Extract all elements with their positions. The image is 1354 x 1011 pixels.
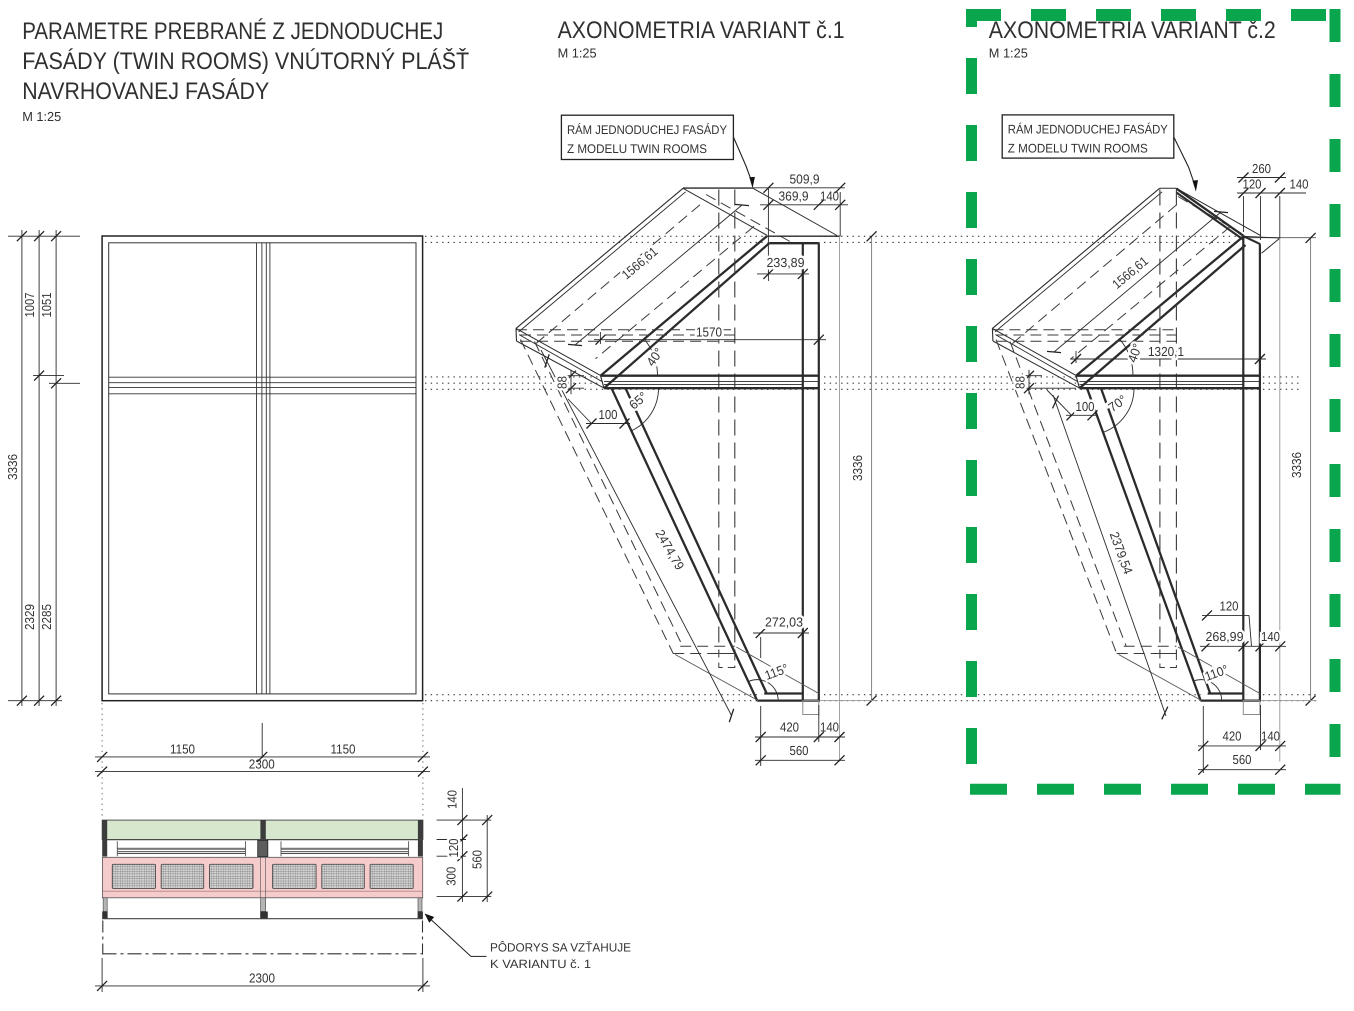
svg-text:369,9: 369,9 — [779, 189, 809, 204]
svg-text:PARAMETRE PREBRANÉ Z JEDNODUCH: PARAMETRE PREBRANÉ Z JEDNODUCHEJ — [22, 18, 443, 45]
svg-text:140: 140 — [1290, 177, 1309, 192]
svg-text:300: 300 — [444, 867, 459, 886]
svg-text:PÔDORYS SA VZŤAHUJE: PÔDORYS SA VZŤAHUJE — [490, 941, 631, 955]
svg-text:509,9: 509,9 — [790, 171, 820, 186]
svg-text:AXONOMETRIA VARIANT č.1: AXONOMETRIA VARIANT č.1 — [558, 17, 845, 44]
svg-text:88: 88 — [555, 376, 570, 389]
svg-text:110°: 110° — [1203, 662, 1231, 684]
svg-text:140: 140 — [820, 720, 839, 735]
svg-text:3336: 3336 — [850, 455, 865, 481]
svg-text:RÁM JEDNODUCHEJ FASÁDY: RÁM JEDNODUCHEJ FASÁDY — [1008, 123, 1169, 137]
svg-text:272,03: 272,03 — [765, 615, 803, 630]
svg-text:2285: 2285 — [39, 604, 54, 630]
svg-text:3336: 3336 — [5, 454, 20, 480]
svg-text:FASÁDY (TWIN ROOMS) VNÚTORNÝ P: FASÁDY (TWIN ROOMS) VNÚTORNÝ PLÁŠŤ — [22, 48, 469, 75]
svg-text:M 1:25: M 1:25 — [989, 46, 1028, 61]
svg-text:NAVRHOVANEJ FASÁDY: NAVRHOVANEJ FASÁDY — [22, 78, 269, 105]
svg-text:1566,61: 1566,61 — [1109, 253, 1151, 291]
svg-text:2300: 2300 — [249, 971, 275, 986]
svg-text:560: 560 — [790, 743, 809, 758]
svg-text:1320,1: 1320,1 — [1148, 344, 1184, 359]
svg-text:100: 100 — [599, 407, 618, 422]
svg-text:1150: 1150 — [170, 741, 195, 756]
svg-text:2329: 2329 — [22, 604, 37, 630]
svg-text:AXONOMETRIA VARIANT č.2: AXONOMETRIA VARIANT č.2 — [989, 17, 1276, 44]
svg-text:2474,79: 2474,79 — [652, 527, 687, 573]
svg-text:268,99: 268,99 — [1206, 629, 1244, 644]
svg-text:420: 420 — [780, 720, 799, 735]
svg-text:100: 100 — [1076, 399, 1095, 414]
svg-text:3336: 3336 — [1289, 452, 1304, 478]
svg-text:1051: 1051 — [39, 293, 54, 318]
svg-text:Z MODELU TWIN ROOMS: Z MODELU TWIN ROOMS — [567, 142, 707, 156]
svg-text:120: 120 — [446, 839, 461, 858]
svg-text:40°: 40° — [1124, 341, 1145, 364]
svg-text:1007: 1007 — [22, 293, 37, 318]
svg-text:M 1:25: M 1:25 — [22, 109, 61, 124]
svg-text:1566,61: 1566,61 — [619, 244, 661, 282]
svg-text:40°: 40° — [643, 345, 666, 369]
svg-text:1150: 1150 — [331, 741, 356, 756]
svg-text:88: 88 — [1013, 376, 1028, 389]
svg-text:420: 420 — [1223, 728, 1242, 743]
svg-text:140: 140 — [820, 189, 839, 204]
svg-text:1570: 1570 — [696, 325, 722, 340]
svg-text:140: 140 — [445, 790, 460, 809]
svg-text:65°: 65° — [626, 389, 650, 413]
svg-text:140: 140 — [1261, 728, 1280, 743]
svg-text:2300: 2300 — [249, 756, 275, 771]
svg-text:233,89: 233,89 — [767, 255, 805, 270]
svg-text:120: 120 — [1243, 177, 1262, 192]
svg-text:120: 120 — [1220, 599, 1239, 614]
svg-text:260: 260 — [1252, 161, 1271, 176]
svg-text:140: 140 — [1261, 629, 1280, 644]
svg-text:560: 560 — [1233, 752, 1252, 767]
svg-text:560: 560 — [469, 850, 484, 869]
svg-text:M 1:25: M 1:25 — [558, 46, 597, 61]
svg-text:Z MODELU TWIN ROOMS: Z MODELU TWIN ROOMS — [1008, 142, 1148, 156]
svg-text:RÁM JEDNODUCHEJ FASÁDY: RÁM JEDNODUCHEJ FASÁDY — [567, 123, 728, 137]
svg-text:K VARIANTU č. 1: K VARIANTU č. 1 — [490, 957, 591, 971]
svg-text:2379,54: 2379,54 — [1107, 530, 1136, 576]
